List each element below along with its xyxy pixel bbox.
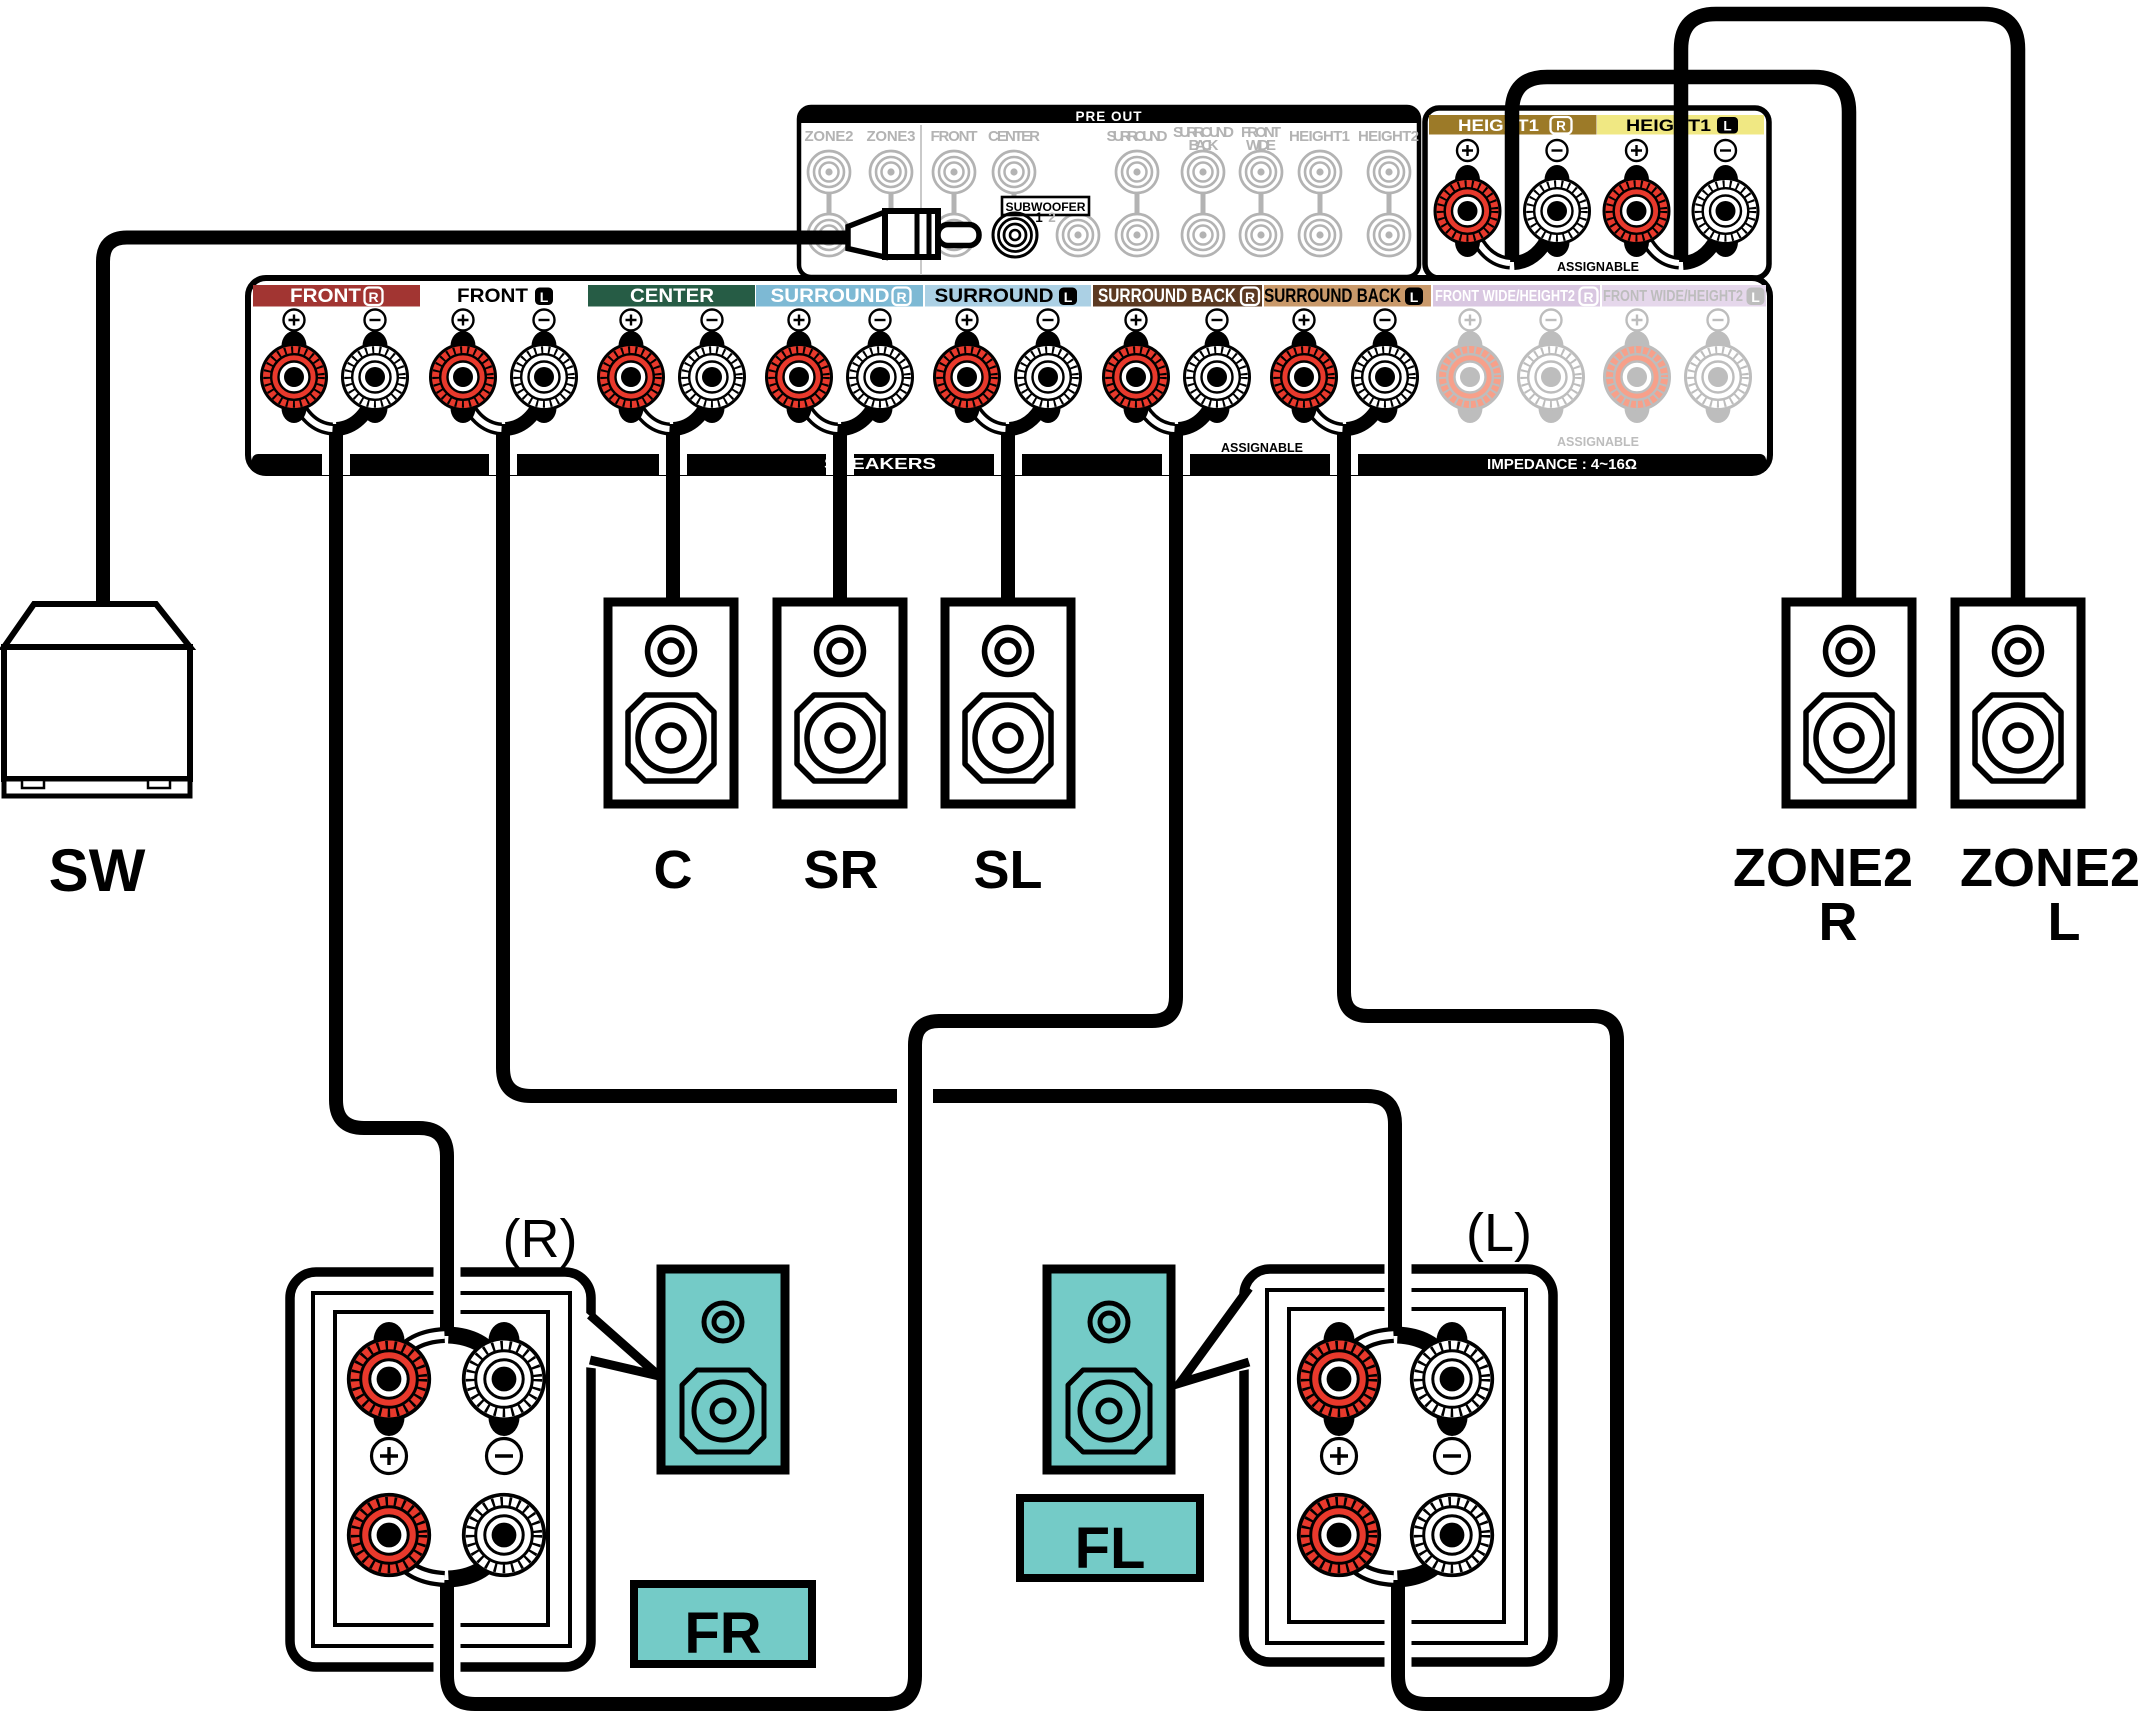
svg-text:L: L: [1751, 289, 1760, 305]
svg-text:R: R: [1819, 892, 1858, 952]
svg-text:CENTER: CENTER: [988, 128, 1040, 145]
svg-text:L: L: [540, 289, 549, 305]
svg-text:ZONE2: ZONE2: [805, 128, 854, 145]
svg-text:R: R: [896, 289, 906, 305]
svg-text:FRONT WIDE/HEIGHT2: FRONT WIDE/HEIGHT2: [1603, 288, 1743, 305]
svg-text:FRONT: FRONT: [290, 286, 361, 307]
svg-text:R: R: [1583, 289, 1593, 305]
svg-text:IMPEDANCE : 4~16Ω: IMPEDANCE : 4~16Ω: [1487, 456, 1637, 473]
svg-text:FRONT: FRONT: [457, 286, 528, 307]
svg-text:ASSIGNABLE: ASSIGNABLE: [1557, 435, 1639, 449]
svg-text:R: R: [1556, 119, 1566, 134]
svg-text:SURROUND BACK: SURROUND BACK: [1264, 286, 1401, 307]
svg-text:FL: FL: [1075, 1516, 1146, 1581]
svg-text:L: L: [1410, 289, 1419, 305]
svg-text:ZONE2: ZONE2: [1960, 838, 2140, 898]
svg-text:PRE OUT: PRE OUT: [1075, 109, 1142, 124]
svg-text:L: L: [2048, 892, 2081, 952]
svg-text:SURROUND BACK: SURROUND BACK: [1098, 286, 1236, 307]
svg-text:CENTER: CENTER: [630, 286, 714, 307]
svg-text:HEIGHT1: HEIGHT1: [1458, 116, 1539, 135]
svg-text:HEIGHT2: HEIGHT2: [1358, 128, 1419, 145]
svg-text:SURROUND: SURROUND: [1107, 128, 1168, 145]
svg-text:R: R: [368, 289, 378, 305]
svg-text:R: R: [1245, 289, 1255, 305]
svg-text:(L): (L): [1466, 1203, 1532, 1263]
svg-text:1: 1: [1035, 210, 1043, 225]
svg-text:HEIGHT1: HEIGHT1: [1626, 116, 1711, 135]
svg-text:C: C: [654, 840, 693, 900]
svg-text:L: L: [1723, 119, 1731, 134]
svg-text:2: 2: [1048, 210, 1056, 225]
svg-text:SURROUND: SURROUND: [771, 286, 890, 307]
svg-text:SURROUND: SURROUND: [935, 286, 1054, 307]
svg-text:FR: FR: [684, 1601, 761, 1666]
svg-text:ZONE2: ZONE2: [1733, 838, 1913, 898]
svg-text:L: L: [1064, 289, 1073, 305]
svg-text:SW: SW: [49, 837, 146, 904]
svg-text:FRONT WIDE/HEIGHT2: FRONT WIDE/HEIGHT2: [1435, 288, 1575, 305]
svg-text:SL: SL: [973, 840, 1042, 900]
svg-text:FRONT: FRONT: [931, 128, 978, 145]
svg-text:ZONE3: ZONE3: [867, 128, 916, 145]
svg-text:SR: SR: [803, 840, 878, 900]
svg-text:(R): (R): [503, 1209, 578, 1269]
svg-text:ASSIGNABLE: ASSIGNABLE: [1557, 260, 1639, 274]
svg-text:HEIGHT1: HEIGHT1: [1289, 128, 1350, 145]
svg-text:ASSIGNABLE: ASSIGNABLE: [1221, 441, 1303, 455]
